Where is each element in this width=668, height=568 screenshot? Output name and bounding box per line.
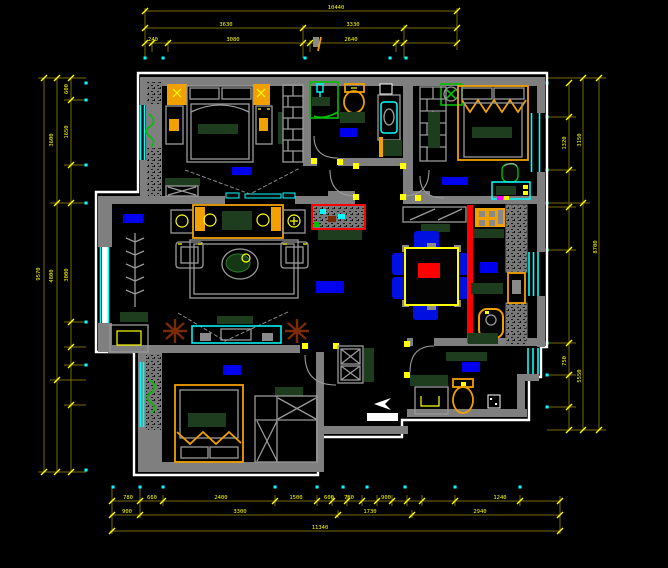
svg-text:2640: 2640 [344,37,357,43]
floor-drain [488,395,500,408]
room-bedroom-bottom-left [147,365,317,462]
svg-text:600: 600 [324,495,334,501]
window-bathroom-bottom [528,348,538,374]
svg-text:3150: 3150 [577,133,583,146]
window-kitchen [529,252,538,296]
kitchen-hatched-wall [506,205,527,272]
dimension-chain-top: 10440 3630 3330 240 3080 2640 [142,5,460,58]
wardrobe [255,396,317,462]
vent [380,84,392,94]
hall-console [312,205,365,240]
hatched-wall [147,148,161,198]
divider-bar [467,205,473,343]
svg-text:750: 750 [562,356,568,366]
cad-floor-plan: 10440 3630 3330 240 3080 2640 780 660 24… [0,0,668,568]
counter [471,283,503,294]
dimension-chain-bottom: 780 660 2400 1500 600 780 900 1240 900 3… [109,486,563,534]
svg-text:900: 900 [381,495,391,501]
svg-text:3330: 3330 [346,22,359,28]
svg-text:3000: 3000 [64,268,70,281]
svg-text:2400: 2400 [214,495,227,501]
room-dining [392,205,473,343]
svg-text:900: 900 [122,509,132,515]
counter [468,333,498,344]
bed-runner [198,124,238,134]
svg-text:780: 780 [344,495,354,501]
washbasin [378,95,400,140]
door-arc-bathroom-bottom [410,346,434,372]
vanity [410,375,448,386]
dry-plant [163,319,187,343]
svg-text:1650: 1650 [64,125,70,138]
room-bathroom-bottom [410,352,500,414]
svg-text:3300: 3300 [233,509,246,515]
section-mark [313,37,321,51]
svg-text:660: 660 [147,495,157,501]
svg-text:1240: 1240 [493,495,506,501]
ac-unit-label [123,214,143,223]
desk-chair [502,164,518,183]
hatched-wall [146,354,161,430]
dimension-chain-right: 8700 3150 5550 1320 750 [547,75,606,433]
nightstand [253,84,270,105]
room-label-bedroom-top-left [232,167,252,175]
svg-text:5550: 5550 [577,369,583,382]
stove [475,208,505,227]
sliding-door-bedroom-top-left [226,193,295,198]
bed [458,86,528,160]
svg-text:1500: 1500 [289,495,302,501]
svg-text:1320: 1320 [562,136,568,149]
coffee-table [222,249,258,279]
room-bathroom-top [310,82,402,157]
bed [175,385,243,462]
window-living-left [101,247,109,323]
dim-ticks [142,8,460,46]
svg-text:1730: 1730 [363,509,376,515]
room-label-bathroom-bottom [462,362,480,372]
counter [473,229,504,238]
svg-text:9570: 9570 [36,267,42,280]
toilet [453,379,473,413]
shoe-cabinet [338,346,374,383]
entry-arrow-icon [374,398,391,410]
appliance [508,273,525,303]
wardrobe [420,87,446,161]
tiny-fixture [497,196,509,200]
svg-text:3600: 3600 [49,133,55,146]
svg-text:780: 780 [123,495,133,501]
room-label-bedroom-top-right [442,177,468,185]
room-bedroom-top-right [420,84,530,200]
dim-top-overall: 10440 [328,5,345,11]
hatched-wall [147,82,161,104]
shelf [275,387,303,396]
floor-plan-drawing: 10440 3630 3330 240 3080 2640 780 660 24… [0,0,668,568]
kitchen-hatched-wall [506,303,527,345]
pillow [222,88,251,99]
pillow [190,88,219,99]
toilet [344,84,364,113]
svg-text:3630: 3630 [219,22,232,28]
room-label-bedroom-bottom [223,365,241,375]
dining-table [402,243,461,310]
coat-rack [126,233,144,307]
entry-marker [367,413,398,421]
room-entry [338,346,398,421]
dimension-chain-left: 9570 3600 4800 600 1650 3000 [36,75,86,475]
wardrobe [283,85,303,162]
window-bedroom-top-right [532,113,540,172]
svg-text:8700: 8700 [593,240,599,253]
dry-plant [285,319,309,343]
room-label-living [316,281,344,293]
dim-bottom-overall: 11340 [312,525,329,531]
room-living [110,205,344,352]
sideboard [403,207,466,232]
svg-text:3080: 3080 [226,37,239,43]
window-bedroom-top-left [141,105,145,160]
counter [446,352,487,361]
sofa [171,205,305,238]
svg-text:240: 240 [148,37,158,43]
svg-text:4800: 4800 [49,269,55,282]
bench [165,178,200,196]
room-label-kitchen [480,262,498,273]
door-arc-bathroom-top [314,136,338,158]
svg-text:2940: 2940 [473,509,486,515]
nightstand [167,84,187,105]
room-label-bathroom-top [340,128,357,137]
svg-text:600: 600 [64,84,70,94]
